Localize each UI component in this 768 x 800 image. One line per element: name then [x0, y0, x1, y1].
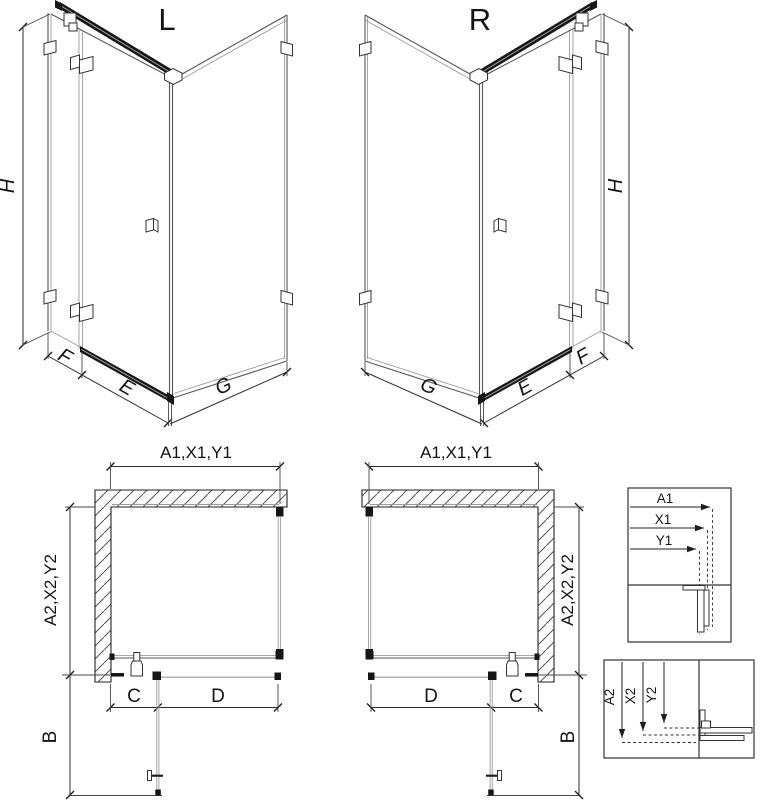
plan-right-entry-dim: C [509, 686, 523, 707]
dim-label-height-left: H [0, 178, 19, 193]
variant-label-left: L [158, 2, 175, 37]
iso-right-view: R H F E G [360, 0, 634, 427]
detail-x1-label: X1 [655, 512, 672, 527]
dim-label-side-right: G [417, 373, 440, 399]
iso-left-view: L H F E G [0, 0, 293, 427]
plan-left-width-dims: A1,X1,Y1 [160, 443, 232, 462]
plan-left-walls [95, 490, 287, 682]
plan-left-door-width-dim: D [211, 686, 225, 707]
plan-right-walls [362, 490, 554, 682]
detail-y1-label: Y1 [656, 533, 673, 548]
plan-right-door-width-dim: D [424, 686, 438, 707]
detail-depth-frame [604, 660, 754, 758]
detail-x2-label: X2 [623, 688, 638, 705]
plan-right-depth-dims: A2,X2,Y2 [558, 554, 577, 626]
drawing-page: L H F E G R H F E G A1,X1,Y1 A2,X2,Y2 C … [0, 0, 768, 800]
dim-label-height-right: H [605, 178, 627, 193]
plan-left-depth-dims: A2,X2,Y2 [41, 554, 60, 626]
dim-label-side-left: G [212, 373, 235, 399]
detail-a2-label: A2 [602, 689, 617, 706]
detail-width-frame [628, 488, 731, 642]
plan-left-entry-dim: C [127, 686, 141, 707]
plan-left-view: A1,X1,Y1 A2,X2,Y2 C D B [40, 443, 287, 799]
dim-label-door-right: E [514, 375, 537, 401]
dim-label-fixed-right: F [572, 343, 595, 369]
dim-label-door-left: E [116, 375, 139, 401]
detail-depth-box: A2 X2 Y2 [602, 660, 754, 758]
shower-enclosure-technical-drawing: L H F E G R H F E G A1,X1,Y1 A2,X2,Y2 C … [0, 0, 768, 800]
detail-a1-label: A1 [657, 491, 674, 506]
detail-y2-label: Y2 [644, 687, 659, 704]
variant-label-right: R [469, 2, 491, 37]
plan-right-view: A1,X1,Y1 A2,X2,Y2 D C B [362, 443, 587, 799]
plan-right-width-dims: A1,X1,Y1 [420, 443, 492, 462]
detail-width-box: A1 X1 Y1 [628, 488, 731, 642]
dim-label-fixed-left: F [54, 344, 77, 370]
plan-right-swing-dim: B [558, 731, 579, 744]
plan-left-swing-dim: B [40, 731, 61, 744]
